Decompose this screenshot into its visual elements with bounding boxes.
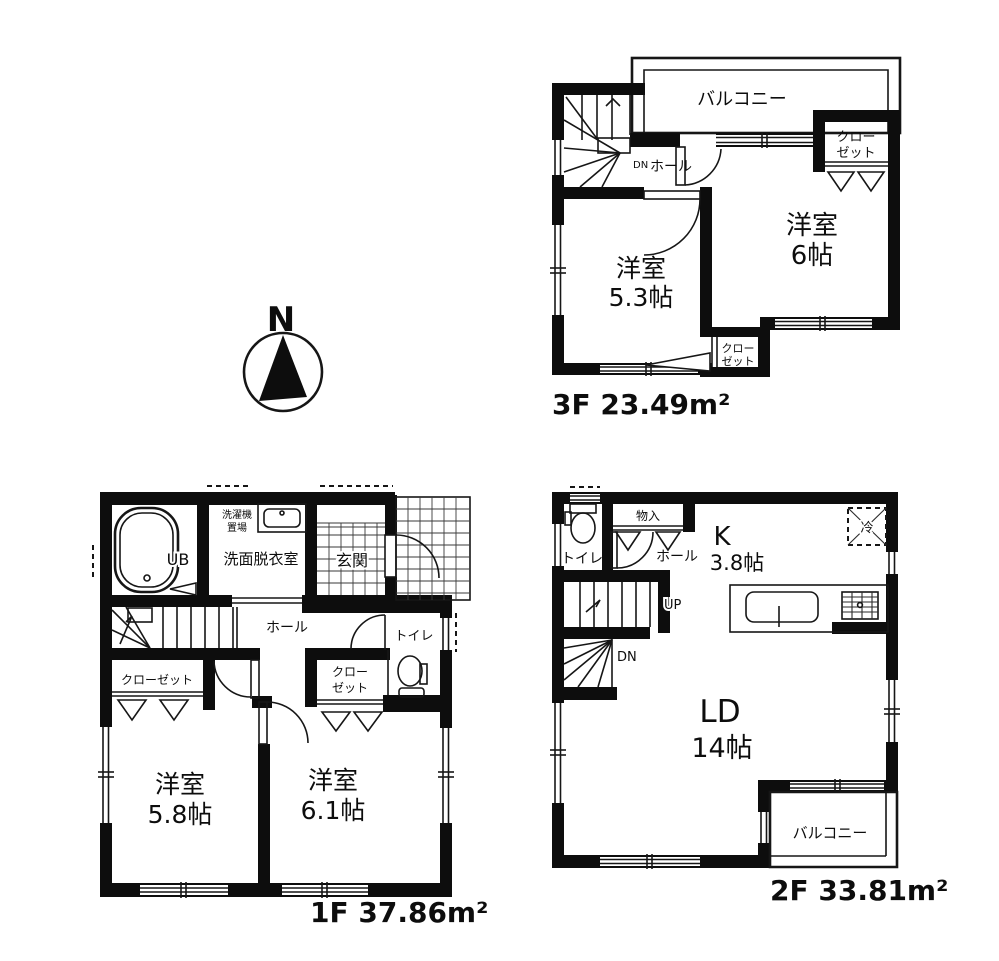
closet-3f-bottom-label: クロー [722,342,755,355]
toilet-2f-label: トイレ [561,551,603,567]
closet-1f-east: クロー ゼット [317,665,383,731]
kitchen-2f-size: 3.8帖 [710,551,764,575]
floor-2f: 冷 トイレ 物入 ホール K 3.8帖 [550,487,948,907]
window-2f-top [570,494,600,502]
door-1f-room61 [259,702,308,744]
floor-1f: UB 洗濯機 置場 洗面脱衣室 玄関 [93,486,488,929]
closet-3f-bottom: クロー ゼット [646,337,755,371]
living-2f-name: LD [699,694,740,730]
storage-2f: 物入 [613,509,683,550]
living-2f-size: 14帖 [691,733,752,764]
floor-plan-canvas: N バルコニー [0,0,999,961]
hall-2f-label: ホール [656,549,698,565]
room61-1f-size: 6.1帖 [301,796,366,825]
window-2f-east-ld [884,680,900,742]
door-1f-room58 [214,660,259,698]
window-3f-west [550,225,566,315]
window-1f-east [438,728,454,823]
closet-3f-top-label2: ゼット [836,146,875,161]
window-2f-balcony-side [758,812,770,843]
balcony-2f: バルコニー [770,792,897,867]
floor-3f: バルコニー [550,58,900,421]
floor-3f-area-label: 3F 23.49m² [552,388,730,421]
door-1f-entrance [385,535,439,578]
room61-1f-name: 洋室 [308,766,358,795]
storage-2f-label: 物入 [636,509,660,523]
toilet-2f-icon [565,504,596,543]
door-3f-hall-to-room53 [644,191,700,255]
stair-2f-dn-label: DN [617,650,637,665]
laundry-1f-label2: 置場 [227,521,247,534]
room6-3f-size: 6帖 [791,241,834,271]
compass-north-label: N [267,300,295,340]
window-2f-east-kitchen [886,552,898,574]
stairs-1f [112,607,237,648]
balcony-3f-label: バルコニー [697,89,787,110]
bath-1f-label: UB [167,550,190,569]
washbasin-icon [258,504,306,532]
washroom-1f-label: 洗面脱衣室 [223,550,298,568]
floor-plan-drawing: N バルコニー [0,0,999,961]
walls-3f [552,83,900,377]
window-1f-toilet [440,618,452,650]
kitchen-2f-name: K [713,522,731,552]
closet-3f-bottom-label2: ゼット [722,355,755,368]
hall-3f-label: ホール [650,159,692,175]
toilet-1f-label: トイレ [394,629,433,644]
toilet-1f-icon [398,656,427,697]
room58-1f-size: 5.8帖 [148,800,213,829]
porch-tile [396,497,470,600]
room53-3f-name: 洋室 [616,254,666,283]
closet-1f-west-label: クローゼット [121,673,193,687]
entrance-1f-label: 玄関 [336,551,368,570]
refrigerator-label: 冷 [860,521,873,536]
compass-icon: N [244,300,322,411]
hall-1f-label: ホール [266,620,308,636]
room53-3f-size: 5.3帖 [609,283,674,312]
stair-3f-dn-label: DN [633,160,648,171]
closet-1f-west: クローゼット [112,673,203,720]
door-1f-ub-mark [170,583,196,595]
floor-2f-area-label: 2F 33.81m² [770,874,948,907]
closet-3f-top-label: クロー [836,130,875,145]
stair-2f-up-label: UP [664,598,682,613]
stove-icon [842,592,878,619]
floor-1f-area-label: 1F 37.86m² [310,896,488,929]
refrigerator-symbol: 冷 [848,508,886,545]
closet-1f-east-label1: クロー [332,665,368,679]
window-2f-west-ld [550,703,566,803]
stairs-3f [564,95,630,187]
closet-1f-east-label2: ゼット [332,681,368,695]
window-3f-stair-west [552,140,564,175]
window-1f-west [98,727,114,823]
room58-1f-name: 洋室 [155,770,205,799]
laundry-1f-label1: 洗濯機 [222,508,252,521]
room6-3f-name: 洋室 [786,211,838,241]
door-1f-washroom-sliding [232,598,302,603]
closet-3f-top: クロー ゼット [825,130,888,191]
balcony-2f-label: バルコニー [793,824,868,842]
